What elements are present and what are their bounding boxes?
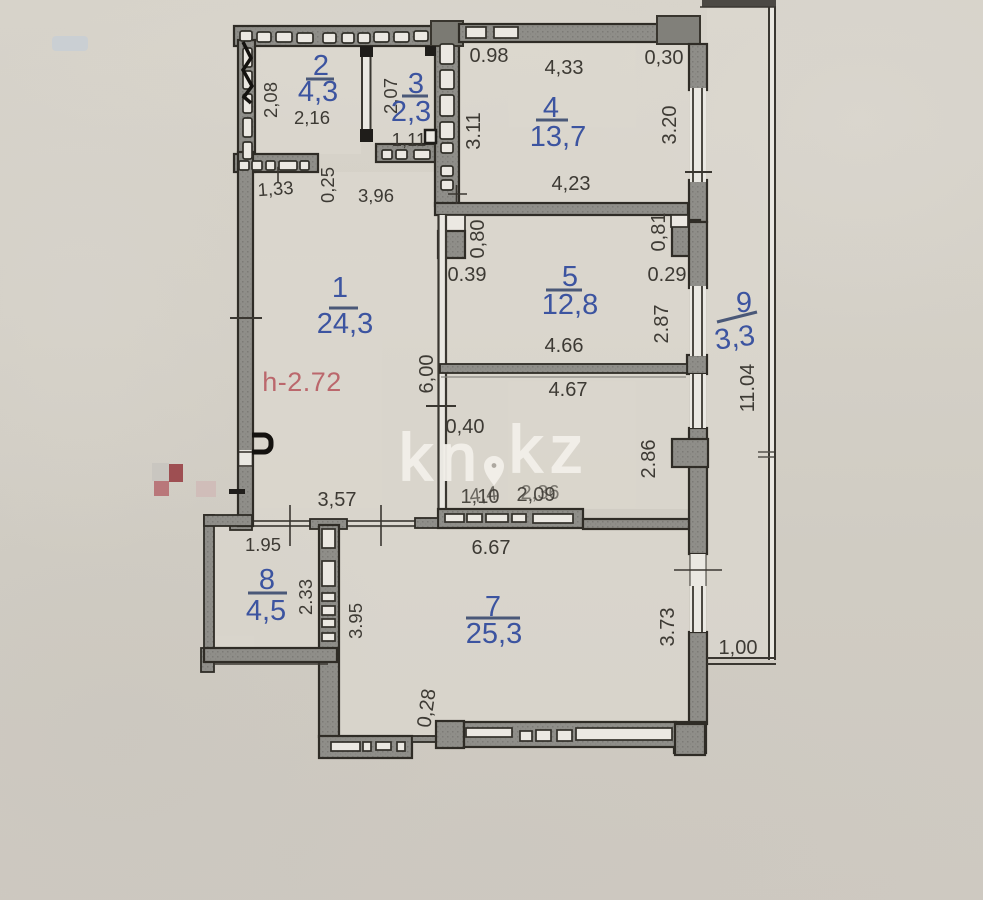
svg-text:4,33: 4,33 (545, 57, 584, 79)
svg-text:1: 1 (332, 272, 348, 304)
svg-text:4.66: 4.66 (545, 335, 584, 357)
svg-text:4,23: 4,23 (552, 173, 591, 195)
svg-text:2.33: 2.33 (295, 579, 316, 615)
svg-text:12,8: 12,8 (542, 289, 598, 321)
svg-text:2,08: 2,08 (260, 82, 281, 118)
svg-text:3.20: 3.20 (659, 106, 681, 145)
svg-text:0.98: 0.98 (470, 45, 509, 67)
svg-text:1,00: 1,00 (719, 637, 758, 659)
svg-text:h-2.72: h-2.72 (262, 367, 342, 397)
svg-text:3.95: 3.95 (345, 603, 366, 639)
svg-text:2.86: 2.86 (638, 440, 660, 479)
svg-text:4,3: 4,3 (298, 76, 338, 108)
svg-text:8: 8 (259, 564, 275, 596)
svg-text:0,30: 0,30 (645, 47, 684, 69)
svg-text:2,16: 2,16 (294, 107, 330, 128)
svg-text:2.87: 2.87 (651, 305, 673, 344)
svg-text:6,00: 6,00 (416, 355, 438, 394)
svg-text:6.67: 6.67 (472, 537, 511, 559)
svg-text:1,11: 1,11 (392, 129, 427, 150)
svg-text:4,5: 4,5 (246, 595, 286, 627)
svg-text:1,33: 1,33 (257, 177, 294, 200)
svg-text:24,3: 24,3 (317, 308, 373, 340)
svg-text:0,80: 0,80 (467, 220, 489, 259)
svg-text:3,96: 3,96 (358, 185, 394, 206)
svg-text:3.11: 3.11 (463, 112, 485, 149)
svg-text:kz: kz (509, 412, 591, 486)
svg-text:13,7: 13,7 (530, 121, 586, 153)
svg-text:11.04: 11.04 (737, 364, 759, 413)
svg-text:25,3: 25,3 (466, 618, 522, 650)
svg-text:0.29: 0.29 (648, 264, 687, 286)
svg-text:2,3: 2,3 (391, 96, 431, 128)
svg-text:1.95: 1.95 (245, 534, 281, 555)
svg-text:0,81: 0,81 (648, 213, 670, 252)
svg-text:0,25: 0,25 (317, 167, 338, 203)
svg-text:4.67: 4.67 (549, 379, 588, 401)
svg-text:kn: kn (399, 420, 485, 494)
svg-text:3.73: 3.73 (657, 608, 679, 647)
svg-text:0.39: 0.39 (448, 264, 487, 286)
svg-text:3,3: 3,3 (713, 319, 757, 356)
svg-text:3,57: 3,57 (318, 489, 357, 511)
